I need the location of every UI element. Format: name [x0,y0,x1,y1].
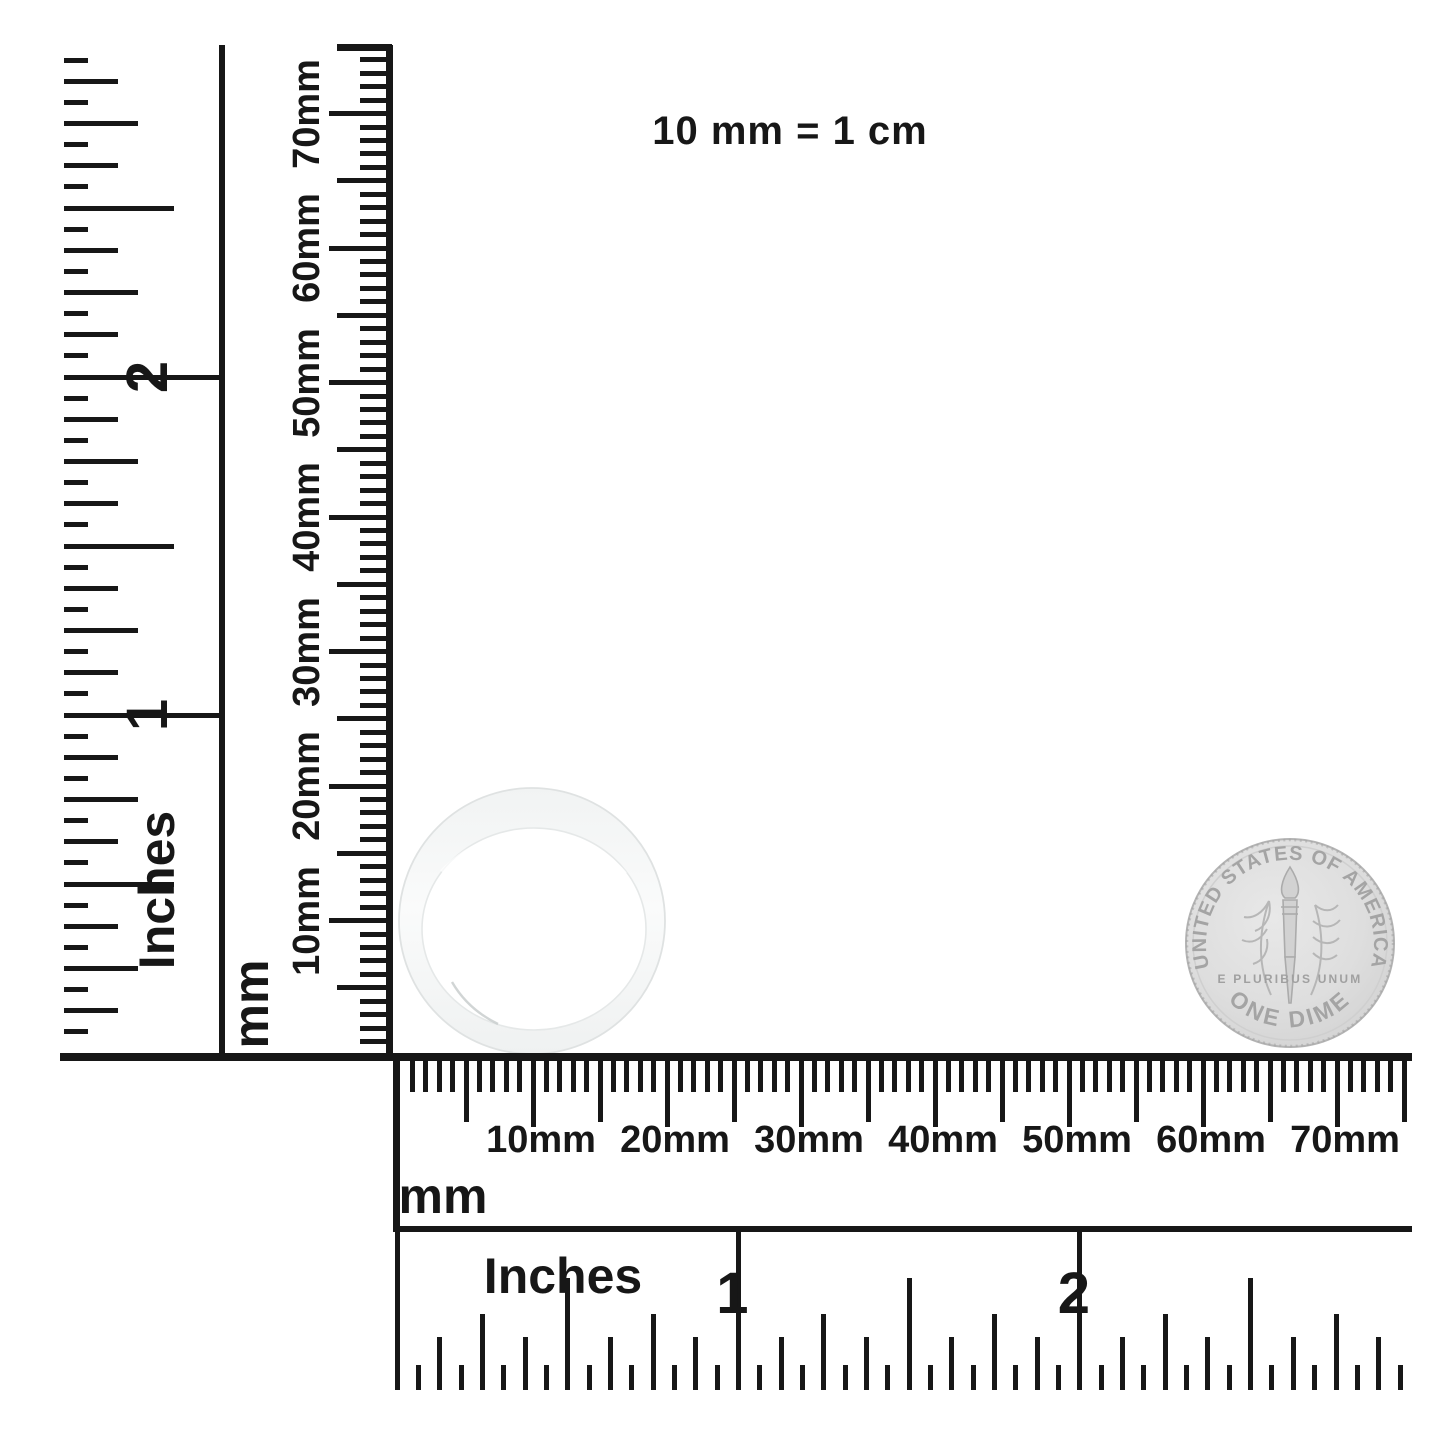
horizontal-inch-tick [651,1314,656,1390]
horizontal-mm-tick [584,1061,589,1092]
vertical-inch-tick [64,248,118,253]
vertical-inch-tick [64,818,88,823]
horizontal-mm-tick [959,1061,964,1092]
horizontal-mm-label: 20mm [620,1121,730,1159]
vertical-mm-tick [360,663,392,668]
horizontal-mm-tick [839,1061,844,1092]
horizontal-inch-tick [1376,1337,1381,1390]
horizontal-inch-tick [885,1365,890,1390]
ruler-corner-baseline [60,1053,1412,1061]
horizontal-inch-tick [800,1365,805,1390]
horizontal-inch-tick [1141,1365,1146,1390]
horizontal-mm-tick [490,1061,495,1092]
vertical-mm-tick [329,649,392,654]
horizontal-mm-tick [598,1061,603,1122]
vertical-inch-tick [64,649,88,654]
vertical-inch-tick [64,544,174,549]
vertical-mm-tick [360,891,392,896]
horizontal-mm-tick [1388,1061,1393,1092]
horizontal-inch-tick [1248,1278,1253,1390]
horizontal-mm-tick [423,1061,428,1092]
vertical-inch-number: 1 [119,699,177,731]
vertical-mm-tick [360,474,392,479]
horizontal-mm-tick [1348,1061,1353,1092]
vertical-inch-tick [64,734,88,739]
horizontal-inch-tick [501,1365,506,1390]
vertical-mm-tick [337,313,392,318]
horizontal-mm-tick [732,1061,737,1122]
vertical-mm-tick [360,272,392,277]
vertical-inch-tick [64,396,88,401]
vertical-mm-tick [329,111,392,116]
horizontal-inch-tick [1355,1365,1360,1390]
horizontal-mm-tick [450,1061,455,1092]
horizontal-inch-tick [1056,1365,1061,1390]
ring-product-photo [390,782,682,1066]
vertical-mm-tick [360,595,392,600]
horizontal-mm-tick [1093,1061,1098,1092]
vertical-inch-tick [64,1008,118,1013]
vertical-mm-tick [337,851,392,856]
horizontal-mm-tick [879,1061,884,1092]
vertical-mm-tick [360,326,392,331]
vertical-mm-tick [360,219,392,224]
vertical-inch-tick [64,924,118,929]
vertical-inch-tick [64,79,118,84]
vertical-mm-tick [360,394,392,399]
vertical-inch-tick [64,163,118,168]
vertical-inch-tick [64,184,88,189]
vertical-inch-tick [64,776,88,781]
vertical-inch-tick [64,565,88,570]
horizontal-mm-tick [691,1061,696,1092]
horizontal-mm-tick [517,1061,522,1092]
horizontal-inch-tick [587,1365,592,1390]
vertical-mm-label: 60mm [288,193,326,303]
vertical-mm-tick [360,488,392,493]
vertical-inch-tick [64,311,88,316]
vertical-mm-tick [360,837,392,842]
horizontal-inch-tick [480,1314,485,1390]
ring-size-chart-image: UNITED STATES OF AMERICA ONE DIME E PLUR… [0,0,1445,1445]
horizontal-mm-tick [1000,1061,1005,1122]
vertical-mm-tick [360,192,392,197]
vertical-mm-tick [360,528,392,533]
vertical-inch-tick [64,332,118,337]
horizontal-mm-tick [1335,1061,1340,1127]
vertical-mm-tick [329,918,392,923]
horizontal-inch-tick [843,1365,848,1390]
vertical-mm-label: 70mm [288,59,326,169]
horizontal-mm-tick [1375,1061,1380,1092]
horizontal-inch-tick [864,1337,869,1390]
horizontal-mm-tick [1187,1061,1192,1092]
vertical-mm-tick [329,515,392,520]
vertical-inch-tick [64,58,88,63]
vertical-mm-tick [360,555,392,560]
horizontal-inch-tick [395,1232,400,1390]
vertical-inch-tick [64,987,88,992]
horizontal-inch-tick [1334,1314,1339,1390]
vertical-inch-ruler-edge [219,45,225,1057]
vertical-mm-tick [360,98,392,103]
horizontal-mm-tick [1308,1061,1313,1092]
horizontal-mm-tick [557,1061,562,1092]
vertical-inch-tick [64,142,88,147]
vertical-mm-label: 40mm [288,462,326,572]
horizontal-mm-tick [504,1061,509,1092]
vertical-mm-tick [337,447,392,452]
vertical-inch-tick [64,670,118,675]
horizontal-inch-tick [437,1337,442,1390]
vertical-mm-tick [337,582,392,587]
vertical-mm-tick [360,501,392,506]
vertical-mm-tick [360,757,392,762]
vertical-inch-tick [64,945,88,950]
vertical-mm-tick [360,57,392,62]
horizontal-mm-tick [866,1061,871,1122]
vertical-mm-tick [360,972,392,977]
horizontal-mm-tick [1201,1061,1206,1127]
vertical-mm-tick [360,609,392,614]
horizontal-mm-tick [1214,1061,1219,1092]
horizontal-inch-tick [523,1337,528,1390]
horizontal-mm-tick [1402,1061,1407,1122]
vertical-inch-tick [64,755,118,760]
horizontal-mm-tick [464,1061,469,1122]
horizontal-mm-tick [611,1061,616,1092]
vertical-inch-tick [64,501,118,506]
horizontal-inch-tick [757,1365,762,1390]
vertical-mm-tick [360,340,392,345]
vertical-mm-tick [360,770,392,775]
coin-motto: E PLURIBUS UNUM [1217,972,1362,986]
vertical-mm-tick [360,541,392,546]
vertical-inch-tick [64,839,118,844]
horizontal-mm-tick [651,1061,656,1092]
vertical-mm-tick [360,864,392,869]
vertical-mm-tick [360,299,392,304]
vertical-mm-tick [360,958,392,963]
horizontal-mm-tick [772,1061,777,1092]
vertical-mm-tick [360,878,392,883]
vertical-inch-tick [64,206,174,211]
vertical-mm-tick [360,407,392,412]
horizontal-inch-tick [928,1365,933,1390]
vertical-mm-tick [360,1012,392,1017]
horizontal-mm-tick [1080,1061,1085,1092]
horizontal-inch-tick [1398,1365,1403,1390]
horizontal-inch-tick [1163,1314,1168,1390]
vertical-mm-tick [329,380,392,385]
horizontal-inch-tick [715,1365,720,1390]
horizontal-mm-unit-label: mm [399,1171,488,1221]
vertical-mm-tick [360,367,392,372]
vertical-mm-tick [360,824,392,829]
vertical-mm-tick [360,71,392,76]
horizontal-mm-tick [1268,1061,1273,1122]
horizontal-mm-tick [1361,1061,1366,1092]
vertical-mm-unit-label: mm [226,960,276,1049]
ruler-divider-line [393,1226,1412,1232]
vertical-mm-tick [360,461,392,466]
vertical-mm-tick [360,636,392,641]
vertical-mm-tick [360,730,392,735]
vertical-mm-tick [360,84,392,89]
vertical-inch-tick [64,628,138,633]
horizontal-mm-tick [892,1061,897,1092]
vertical-inch-tick [64,860,88,865]
horizontal-mm-tick [825,1061,830,1092]
horizontal-mm-tick [919,1061,924,1092]
horizontal-mm-tick [1053,1061,1058,1092]
vertical-mm-tick [360,743,392,748]
horizontal-inch-tick [1205,1337,1210,1390]
horizontal-mm-tick [852,1061,857,1092]
vertical-mm-tick [360,353,392,358]
vertical-inch-tick [64,903,88,908]
horizontal-mm-tick [1040,1061,1045,1092]
vertical-mm-tick [360,420,392,425]
vertical-inch-tick [64,1029,88,1034]
vertical-mm-tick [360,676,392,681]
vertical-inch-tick [64,290,138,295]
horizontal-mm-tick [1281,1061,1286,1092]
horizontal-mm-tick [799,1061,804,1127]
vertical-inch-tick [64,417,118,422]
horizontal-inch-tick [565,1278,570,1390]
horizontal-mm-tick [665,1061,670,1127]
horizontal-mm-tick [1227,1061,1232,1092]
horizontal-mm-tick [1026,1061,1031,1092]
horizontal-mm-tick [1107,1061,1112,1092]
vertical-inch-unit-label: Inches [132,811,182,969]
vertical-mm-tick [360,810,392,815]
vertical-mm-tick [329,246,392,251]
horizontal-inch-tick [949,1337,954,1390]
horizontal-mm-tick [933,1061,938,1127]
vertical-mm-tick [360,259,392,264]
horizontal-mm-tick [1321,1061,1326,1092]
horizontal-mm-tick [758,1061,763,1092]
vertical-inch-tick [64,121,138,126]
horizontal-inch-unit-label: Inches [484,1251,642,1301]
horizontal-mm-tick [1241,1061,1246,1092]
vertical-mm-tick [360,286,392,291]
horizontal-inch-tick [1099,1365,1104,1390]
vertical-mm-tick [360,932,392,937]
horizontal-mm-tick [1134,1061,1139,1122]
horizontal-mm-tick [437,1061,442,1092]
vertical-mm-tick [360,945,392,950]
scale-note: 10 mm = 1 cm [652,111,928,151]
vertical-mm-tick [360,434,392,439]
horizontal-inch-tick [459,1365,464,1390]
vertical-mm-tick [360,165,392,170]
horizontal-inch-number: 1 [716,1265,748,1323]
horizontal-mm-label: 30mm [754,1121,864,1159]
vertical-mm-tick [360,151,392,156]
horizontal-mm-tick [986,1061,991,1092]
vertical-inch-tick [64,966,138,971]
vertical-mm-tick [360,703,392,708]
vertical-inch-tick [64,100,88,105]
horizontal-mm-tick [410,1061,415,1092]
horizontal-inch-tick [992,1314,997,1390]
horizontal-mm-tick [946,1061,951,1092]
horizontal-inch-tick [416,1365,421,1390]
vertical-mm-tick [360,1026,392,1031]
horizontal-mm-tick [1160,1061,1165,1092]
horizontal-inch-tick [1269,1365,1274,1390]
vertical-mm-tick [360,125,392,130]
vertical-inch-tick [64,797,138,802]
horizontal-mm-tick [1013,1061,1018,1092]
horizontal-mm-tick [1067,1061,1072,1127]
horizontal-mm-label: 10mm [486,1121,596,1159]
vertical-mm-tick [360,568,392,573]
horizontal-mm-tick [812,1061,817,1092]
vertical-mm-tick [337,44,392,51]
horizontal-inch-tick [608,1337,613,1390]
horizontal-inch-tick [907,1278,912,1390]
horizontal-mm-tick [1294,1061,1299,1092]
horizontal-mm-tick [638,1061,643,1092]
vertical-mm-tick [360,138,392,143]
vertical-mm-tick [360,205,392,210]
vertical-mm-label: 30mm [288,597,326,707]
vertical-mm-tick [337,178,392,183]
horizontal-mm-tick [906,1061,911,1092]
vertical-inch-number: 2 [119,361,177,393]
vertical-inch-tick [64,227,88,232]
vertical-inch-tick [64,480,88,485]
horizontal-mm-label: 70mm [1290,1121,1400,1159]
horizontal-inch-tick [1227,1365,1232,1390]
horizontal-mm-tick [718,1061,723,1092]
horizontal-mm-tick [624,1061,629,1092]
horizontal-mm-tick [1174,1061,1179,1092]
horizontal-inch-tick [1013,1365,1018,1390]
vertical-inch-tick [64,607,88,612]
vertical-mm-label: 10mm [288,866,326,976]
vertical-inch-tick [64,586,118,591]
vertical-mm-tick [337,716,392,721]
vertical-mm-tick [360,689,392,694]
vertical-mm-label: 50mm [288,328,326,438]
horizontal-inch-tick [672,1365,677,1390]
horizontal-inch-tick [779,1337,784,1390]
vertical-inch-tick [64,882,174,887]
horizontal-mm-tick [1254,1061,1259,1092]
vertical-inch-tick [64,353,88,358]
vertical-mm-tick [360,999,392,1004]
horizontal-inch-tick [821,1314,826,1390]
horizontal-mm-tick [678,1061,683,1092]
vertical-inch-tick [64,522,88,527]
vertical-mm-tick [360,232,392,237]
horizontal-inch-tick [1291,1337,1296,1390]
vertical-mm-tick [360,797,392,802]
vertical-inch-tick [64,438,88,443]
vertical-inch-tick [64,269,88,274]
horizontal-mm-label: 50mm [1022,1121,1132,1159]
horizontal-mm-tick [531,1061,536,1127]
horizontal-mm-label: 40mm [888,1121,998,1159]
horizontal-mm-tick [1120,1061,1125,1092]
horizontal-mm-tick [705,1061,710,1092]
horizontal-mm-tick [745,1061,750,1092]
vertical-mm-tick [360,1039,392,1044]
dime-coin: UNITED STATES OF AMERICA ONE DIME E PLUR… [1183,835,1399,1051]
horizontal-inch-tick [629,1365,634,1390]
vertical-mm-tick [360,622,392,627]
vertical-mm-tick [360,905,392,910]
horizontal-mm-tick [544,1061,549,1092]
horizontal-inch-tick [1184,1365,1189,1390]
horizontal-inch-tick [693,1337,698,1390]
vertical-mm-tick [329,784,392,789]
horizontal-inch-tick [1312,1365,1317,1390]
horizontal-inch-tick [971,1365,976,1390]
vertical-mm-tick [337,985,392,990]
horizontal-inch-tick [1120,1337,1125,1390]
vertical-inch-tick [64,691,88,696]
vertical-inch-tick [64,459,138,464]
horizontal-inch-tick [1035,1337,1040,1390]
horizontal-mm-label: 60mm [1156,1121,1266,1159]
horizontal-mm-tick [571,1061,576,1092]
vertical-mm-label: 20mm [288,731,326,841]
horizontal-inch-tick [544,1365,549,1390]
horizontal-mm-tick [973,1061,978,1092]
horizontal-mm-tick [1147,1061,1152,1092]
horizontal-mm-tick [785,1061,790,1092]
horizontal-inch-number: 2 [1058,1265,1090,1323]
horizontal-mm-tick [477,1061,482,1092]
